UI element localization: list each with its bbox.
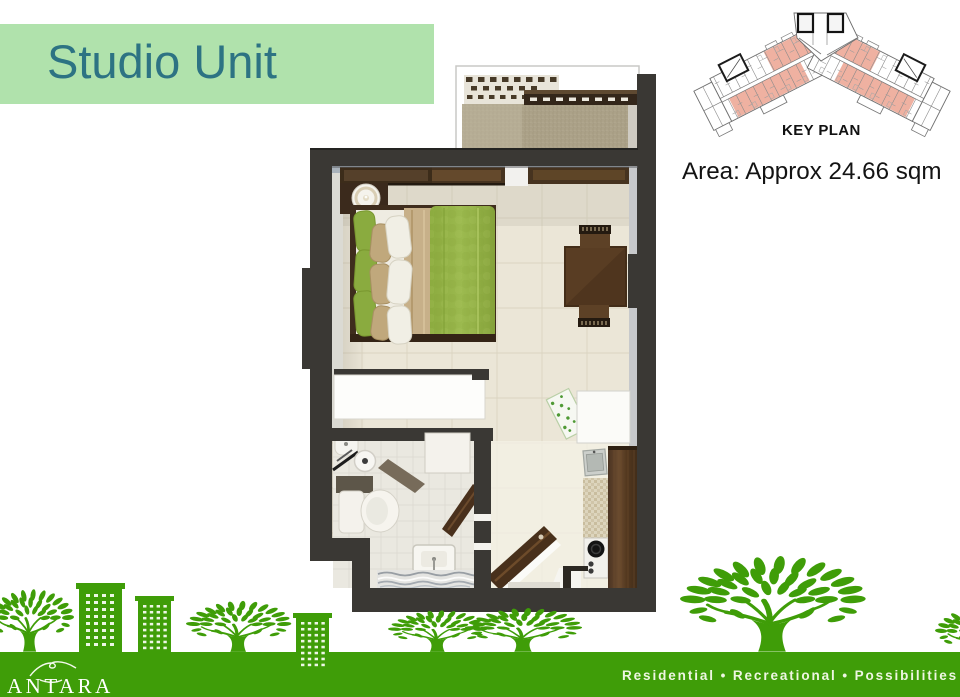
svg-text:Residential • Recreational • P: Residential • Recreational • Possibiliti… [622,668,958,683]
svg-text:ANTARA: ANTARA [7,674,114,697]
svg-text:KEY PLAN: KEY PLAN [782,122,861,139]
